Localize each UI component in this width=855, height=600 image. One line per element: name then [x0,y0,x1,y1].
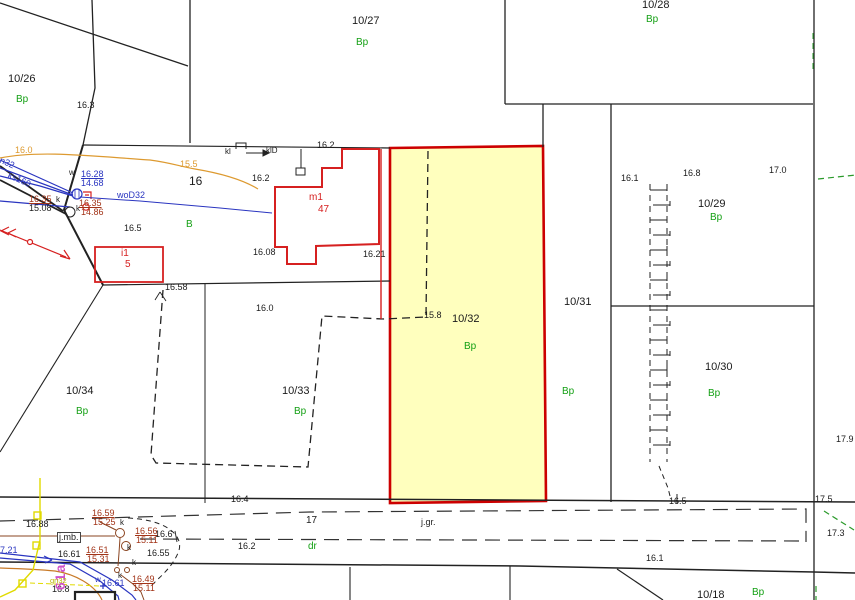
utility-label: woD32 [117,191,145,200]
utility-label: gn32 [50,577,67,585]
elevation-label: 17.0 [769,166,787,175]
land-use-label: Bp [708,389,720,400]
parcel-label: 10/33 [282,386,310,398]
elevation-label: 16.61 [58,550,81,559]
contour-label: 15.5 [180,160,198,169]
elevation-label: 16.08 [253,248,276,257]
parcel-label: 10/27 [352,16,380,28]
elevation-label: 17.9 [836,435,854,444]
symbol-label: k [132,559,136,567]
utility-label: w [95,576,101,584]
symbol-label: k [56,196,60,204]
symbol-label: w [69,169,75,177]
green-dashed-lines [813,33,855,600]
building-label: 47 [318,205,329,216]
building-label: i1 [121,249,129,260]
land-use-label: Bp [464,342,476,353]
scarp-ladder-symbol [650,184,671,500]
elevation-label: 16.58 [165,283,188,292]
elevation-label: 15.8 [424,311,442,320]
elevation-label: 17.3 [827,529,845,538]
building-bottom-left [75,592,115,600]
benchmark-label: 15.25 [93,518,116,527]
parcel-label: 10/18 [697,590,725,600]
elevation-label: 16.2 [317,141,335,150]
contour-label: 16.0 [15,146,33,155]
building-label: m1 [309,193,323,204]
contour-lines-orange [0,154,258,600]
parcel-label: 17 [306,516,317,527]
map-drawing [0,0,855,600]
elevation-label: 16.21 [363,250,386,259]
cadastral-map-canvas: 10/2610/2710/2810/2910/3010/3110/3210/33… [0,0,855,600]
elevation-label: 17.5 [815,495,833,504]
land-use-label: B [186,220,193,231]
land-use-label: Bp [76,407,88,418]
elevation-label: 16.0 [256,304,274,313]
elevation-label: 15.08 [29,204,52,213]
land-use-label: Bp [356,38,368,49]
elevation-label: 16.88 [26,520,49,529]
benchmark-label: 16.35 [29,195,52,204]
symbol-label: k [120,519,124,527]
parcel-label: 10/30 [705,362,733,374]
utility-label-kl: kl [225,148,231,156]
utility-label-klD: klD [266,147,278,155]
elevation-label: 16.1 [646,554,664,563]
elevation-label: 16.55 [147,549,170,558]
surface-label-jmb: j.mb. [57,532,81,543]
buildings-red [95,149,381,319]
elevation-label: 16.1 [621,174,639,183]
symbol-label: k [127,544,131,552]
sign-post-box [296,168,305,175]
building-label: 5 [125,260,131,271]
parcel-label: 10/26 [8,74,36,86]
land-use-label: Bp [16,95,28,106]
elevation-label: 16.4 [231,495,249,504]
land-use-label: Bp [646,15,658,26]
utility-label: 16.61 [102,579,125,588]
land-use-label: Bp [562,387,574,398]
benchmark-label: 15.11 [136,536,158,545]
manhole-symbol [65,207,75,217]
elevation-label: 16.3 [77,101,95,110]
land-use-label: Bp [294,407,306,418]
benchmark-label: 15.31 [87,555,110,564]
elevation-label: 16.2 [238,542,256,551]
benchmark-label: 15.11 [133,584,155,593]
land-use-label: Bp [710,213,722,224]
surface-label-jgr: j.gr. [421,518,436,527]
parcel-label: 10/28 [642,0,670,12]
parcel-label: 16 [189,175,202,188]
parcel-label: 10/32 [452,314,480,326]
elevation-label: 16.2 [252,174,270,183]
land-use-label: dr [308,542,317,553]
parcel-label: 10/31 [564,297,592,309]
utility-label: 7.21 [0,546,18,555]
parcel-label: 10/34 [66,386,94,398]
elevation-label: 16.8 [683,169,701,178]
elevation-label: 16.5 [124,224,142,233]
parcel-label: 10/29 [698,199,726,211]
utility-label: 14.68 [81,179,104,188]
elevation-label: 16.5 [669,497,687,506]
benchmark-label: 14.86 [81,208,104,217]
land-use-label: Bp [752,588,764,599]
